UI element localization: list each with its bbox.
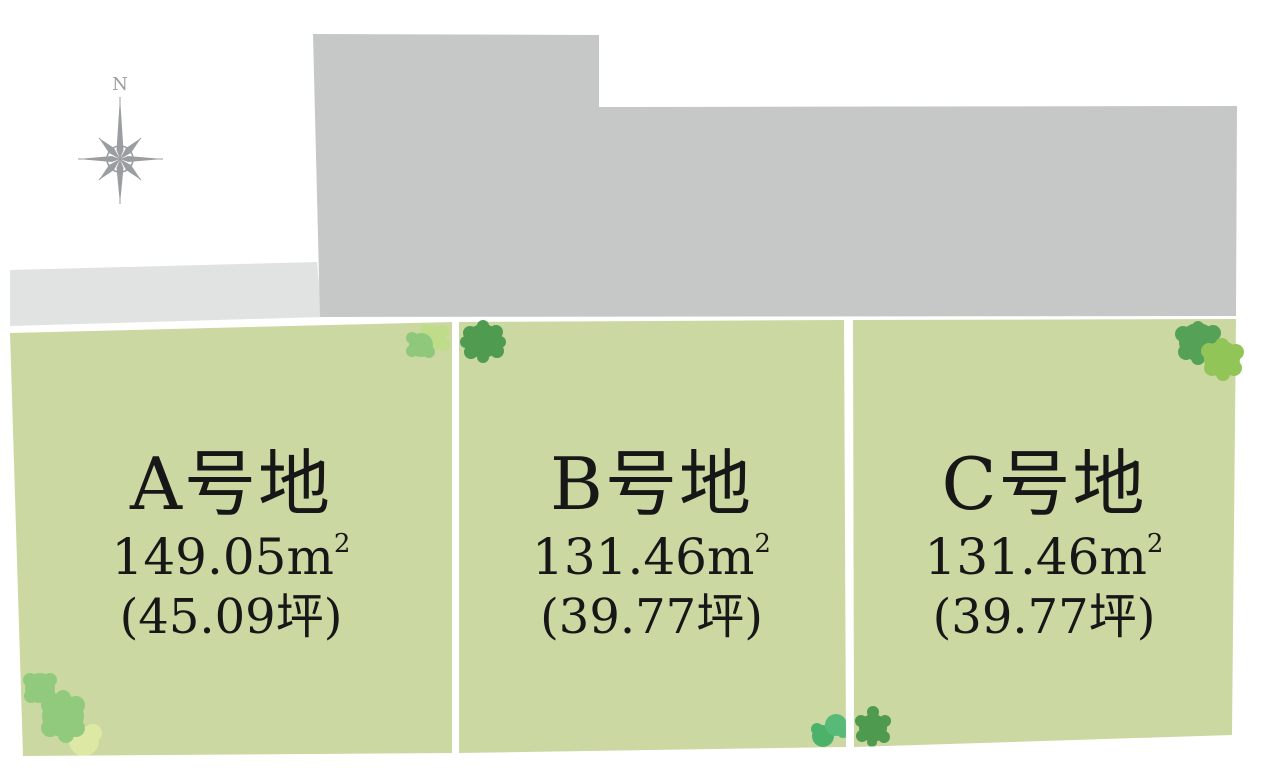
parcel-c-tsubo: (39.77坪) [852,588,1236,646]
tree-icon [811,714,849,747]
compass-rose: N [70,72,170,217]
tree-icon [855,706,891,747]
parcel-b-name: B号地 [459,442,844,526]
site-plan: N A号地 149.05m2 (45.09坪) B号地 131.46m2 (39… [0,0,1272,780]
parcel-c-area-value: 131.46 [925,528,1100,586]
parcel-b-area-value: 131.46 [532,528,707,586]
parcel-a-tsubo: (45.09坪) [10,588,452,646]
tree-icon [23,673,102,756]
parcel-c-label: C号地 131.46m2 (39.77坪) [852,442,1236,646]
parcel-a-area: 149.05m2 [10,526,452,588]
square-meter-unit: m2 [707,528,771,586]
parcel-c-name: C号地 [852,442,1236,526]
parcel-b-area: 131.46m2 [459,526,844,588]
parcel-b-label: B号地 131.46m2 (39.77坪) [459,442,844,646]
parcel-c-area: 131.46m2 [852,526,1236,588]
parcel-a-area-value: 149.05 [112,528,287,586]
parcel-b-tsubo: (39.77坪) [459,588,844,646]
north-label: N [112,74,128,95]
square-meter-unit: m2 [1099,528,1163,586]
square-meter-unit: m2 [286,528,350,586]
parcel-a-label: A号地 149.05m2 (45.09坪) [10,442,452,646]
parcel-a-name: A号地 [10,442,452,526]
